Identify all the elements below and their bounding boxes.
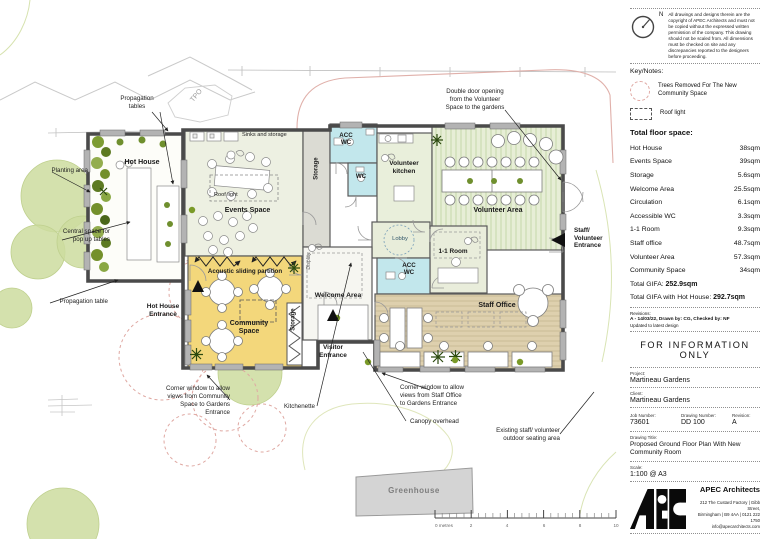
divider — [630, 461, 760, 462]
revision-entry: A - 14/03/22, Drawn by: CG, Checked by: … — [630, 317, 760, 322]
client-value: Martineau Gardens — [630, 397, 760, 404]
room-label-events-space: Events Space — [210, 207, 285, 215]
floor-space-row: Events Space39sqm — [630, 158, 760, 165]
annotation-planting-area: Planting area — [8, 167, 88, 175]
number-fields: Job Number: 73601 Drawing Number: DD 100… — [630, 411, 760, 428]
key-item-label: Roof light — [660, 110, 685, 118]
floor-space-row: Community Space34sqm — [630, 267, 760, 274]
room-label-hot-house: Hot House — [112, 159, 172, 167]
job-number-label: Job Number: — [630, 413, 681, 418]
roof-light-symbol — [630, 108, 652, 120]
divider — [630, 387, 760, 388]
room-label-acc-wc-mid: ACC WC — [396, 262, 422, 277]
room-label-lobby: Lobby — [384, 236, 416, 243]
floor-space-row: Accessible WC3.3sqm — [630, 213, 760, 220]
drawing-title-label: Drawing Title: — [630, 435, 760, 440]
annotation-corner-window-community: Corner window to allow views from Commun… — [105, 385, 230, 417]
revision-note: Updated to latest design — [630, 323, 760, 328]
row-name: Staff office — [630, 240, 662, 247]
label-greenhouse: Greenhouse — [374, 486, 454, 496]
drawing-number-value: DD 100 — [681, 419, 732, 426]
room-label-one-to-one: 1-1 Room — [430, 248, 476, 256]
annotation-outdoor-seating: Existing staff/ volunteer outdoor seatin… — [462, 427, 560, 443]
row-name: 1-1 Room — [630, 226, 660, 233]
total-gifa-value: 252.9sqm — [666, 281, 698, 288]
floor-space-row: Welcome Area25.5sqm — [630, 186, 760, 193]
north-label: N — [659, 12, 663, 18]
total-gifa-label: Total GIFA: — [630, 281, 664, 288]
floor-space-row: Staff office48.7sqm — [630, 240, 760, 247]
row-name: Accessible WC — [630, 213, 676, 220]
project-label: Project: — [630, 371, 760, 376]
row-area: 57.3sqm — [734, 254, 760, 261]
divider — [630, 331, 760, 332]
row-area: 48.7sqm — [734, 240, 760, 247]
row-area: 39sqm — [740, 158, 760, 165]
label-sinks-storage: Sinks and storage — [242, 132, 302, 139]
job-number-value: 73601 — [630, 419, 681, 426]
drawing-number-label: Drawing Number: — [681, 413, 732, 418]
room-label-volunteer-kitchen: Volunteer kitchen — [380, 160, 428, 176]
divider — [630, 431, 760, 432]
floor-plan-sheet: 0 metres 2 4 6 8 10 Propagation tables P… — [0, 0, 768, 539]
divider — [630, 481, 760, 482]
floor-space-table: Hot House38sqm Events Space39sqm Storage… — [630, 145, 760, 274]
row-name: Welcome Area — [630, 186, 674, 193]
row-name: Storage — [630, 172, 654, 179]
divider — [630, 63, 760, 64]
scale-label-0: 0 metres — [435, 523, 454, 528]
annotation-canopy: Canopy overhead — [410, 418, 500, 426]
total-gifa-hot-house: Total GIFA with Hot House: 292.7sqm — [630, 294, 760, 301]
room-label-staff-office: Staff Office — [462, 302, 532, 310]
room-label-volunteer-area: Volunteer Area — [458, 207, 538, 215]
scale-label-8: 8 — [579, 523, 582, 528]
label-roof-light: Roof light — [214, 192, 254, 199]
status-stamp: FOR INFORMATION ONLY — [630, 335, 760, 364]
north-arrow-icon — [630, 12, 658, 40]
total-gifa-hh-value: 292.7sqm — [713, 294, 745, 301]
client-label: Client: — [630, 391, 760, 396]
apec-logo — [630, 485, 686, 529]
floor-space-row: Hot House38sqm — [630, 145, 760, 152]
total-gifa-hh-label: Total GIFA with Hot House: — [630, 294, 711, 301]
room-label-storage-community: Storage — [290, 299, 297, 341]
scale-label-2: 2 — [470, 523, 473, 528]
copyright-note: All drawings and designs therein are the… — [668, 12, 760, 60]
key-item-removed-trees: Trees Removed For The New Community Spac… — [630, 81, 760, 101]
scale-label-4: 4 — [506, 523, 509, 528]
divider — [630, 367, 760, 368]
annotation-central-space: Central space for pop up tables — [10, 228, 110, 244]
divider — [630, 407, 760, 408]
entrance-label-hot-house: Hot House Entrance — [130, 303, 196, 319]
entrance-label-staff-volunteer: Staff/ Volunteer Entrance — [574, 227, 620, 250]
row-name: Circulation — [630, 199, 662, 206]
key-notes-heading: Key/Notes: — [630, 68, 760, 75]
room-label-acc-wc-top: ACC WC — [333, 132, 359, 147]
floor-space-row: Circulation6.1sqm — [630, 199, 760, 206]
row-name: Volunteer Area — [630, 254, 675, 261]
row-name: Hot House — [630, 145, 662, 152]
annotation-double-door: Double door opening from the Volunteer S… — [420, 88, 530, 112]
drawing-title-value: Proposed Ground Floor Plan With New Comm… — [630, 441, 760, 458]
row-name: Community Space — [630, 267, 686, 274]
scale-label-6: 6 — [543, 523, 546, 528]
divider — [630, 307, 760, 308]
title-block-panel: N All drawings and designs therein are t… — [621, 0, 768, 539]
floor-space-heading: Total floor space: — [630, 128, 760, 137]
revisions-heading: Revisions: — [630, 311, 760, 316]
row-area: 5.6sqm — [738, 172, 760, 179]
room-label-community-space: Community Space — [216, 320, 282, 337]
revision-label: Revision: — [732, 413, 760, 418]
scale-label-10: 10 — [613, 523, 619, 528]
divider — [630, 533, 760, 534]
total-gifa: Total GIFA: 252.9sqm — [630, 281, 760, 288]
annotation-propagation-table: Propagation table — [8, 298, 108, 306]
annotation-corner-window-staff: Corner window to allow views from Staff … — [400, 384, 510, 408]
room-label-storage-top: Storage — [313, 148, 320, 190]
scale-label: Scale: — [630, 465, 760, 470]
row-area: 3.3sqm — [738, 213, 760, 220]
firm-block: APEC Architects 212 The Custard Factory … — [630, 485, 760, 530]
firm-name: APEC Architects — [692, 485, 760, 494]
label-display: Display — [306, 243, 312, 279]
annotation-propagation-tables: Propagation tables — [102, 95, 172, 111]
row-area: 34sqm — [740, 267, 760, 274]
key-item-roof-light: Roof light — [630, 108, 760, 120]
floor-space-row: 1-1 Room9.3sqm — [630, 226, 760, 233]
annotation-kitchenette: Kitchenette — [255, 403, 315, 411]
removed-tree-symbol — [630, 81, 650, 101]
row-area: 9.3sqm — [738, 226, 760, 233]
scale-value: 1:100 @ A3 — [630, 471, 760, 478]
entrance-label-visitor: Visitor Entrance — [303, 344, 363, 360]
divider — [630, 8, 760, 9]
row-name: Events Space — [630, 158, 672, 165]
row-area: 25.5sqm — [734, 186, 760, 193]
firm-address: 212 The Custard Factory | Gibb Street, B… — [692, 500, 760, 530]
floor-space-row: Volunteer Area57.3sqm — [630, 254, 760, 261]
key-item-label: Trees Removed For The New Community Spac… — [658, 83, 737, 99]
row-area: 6.1sqm — [738, 199, 760, 206]
room-label-welcome-area: Welcome Area — [305, 292, 371, 300]
row-area: 38sqm — [740, 145, 760, 152]
project-value: Martineau Gardens — [630, 377, 760, 384]
revision-value: A — [732, 419, 760, 426]
floor-space-row: Storage5.6sqm — [630, 172, 760, 179]
label-acoustic-partition: Acoustic sliding partition — [195, 268, 295, 275]
room-label-wc: WC — [350, 173, 372, 180]
